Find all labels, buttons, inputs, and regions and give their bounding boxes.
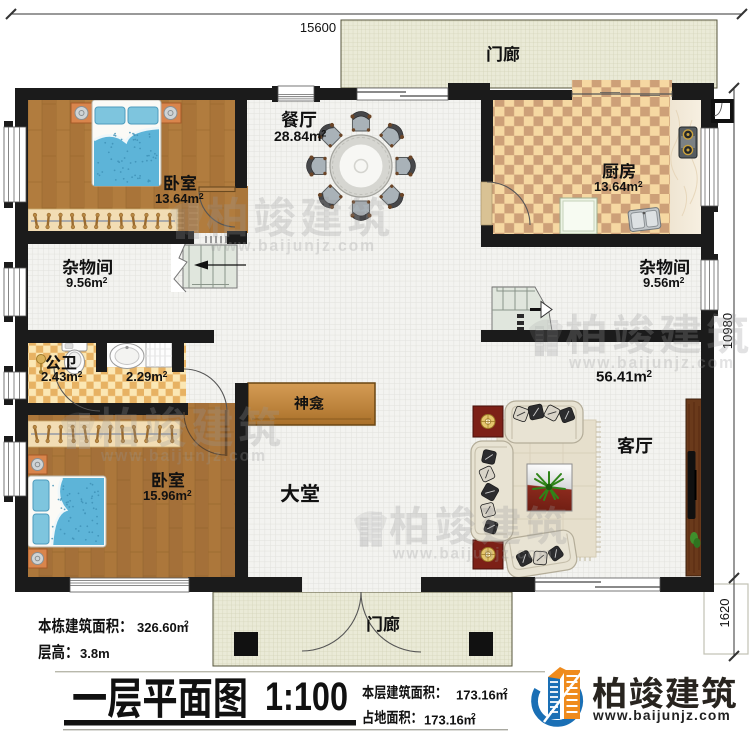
svg-text:2: 2 <box>163 369 168 379</box>
svg-text:1:100: 1:100 <box>265 675 348 719</box>
svg-text:2: 2 <box>78 369 83 379</box>
svg-text:2: 2 <box>471 711 476 721</box>
svg-text:173.16m: 173.16m <box>456 688 507 703</box>
svg-text:2.29m: 2.29m <box>126 369 163 384</box>
svg-text:15.96m: 15.96m <box>143 488 187 503</box>
svg-text:3.8m: 3.8m <box>80 646 110 661</box>
svg-text:www.baijunjz.com: www.baijunjz.com <box>568 354 735 372</box>
svg-text:www.baijunjz.com: www.baijunjz.com <box>209 237 376 255</box>
svg-text:2: 2 <box>680 275 685 285</box>
svg-text:2: 2 <box>199 191 204 201</box>
svg-text:1620: 1620 <box>717 599 732 628</box>
svg-text:2: 2 <box>184 619 189 629</box>
svg-text:15600: 15600 <box>300 20 336 35</box>
svg-text:173.16m: 173.16m <box>424 713 475 728</box>
svg-text:www.baijunjz.com: www.baijunjz.com <box>392 545 554 562</box>
svg-text:2.43m: 2.43m <box>41 369 78 384</box>
svg-text:2: 2 <box>321 128 326 138</box>
svg-text:13.64m: 13.64m <box>594 179 638 194</box>
svg-text:2: 2 <box>503 686 508 696</box>
svg-text:2: 2 <box>638 179 643 189</box>
svg-text:326.60m: 326.60m <box>137 620 188 635</box>
svg-text:2: 2 <box>103 275 108 285</box>
svg-text:9.56m: 9.56m <box>643 275 680 290</box>
svg-text:2: 2 <box>187 488 192 498</box>
svg-text:www.baijunjz.com: www.baijunjz.com <box>100 447 267 465</box>
svg-text:www.baijunjz.com: www.baijunjz.com <box>592 707 731 723</box>
svg-text:9.56m: 9.56m <box>66 275 103 290</box>
svg-text:28.84m: 28.84m <box>274 128 321 144</box>
